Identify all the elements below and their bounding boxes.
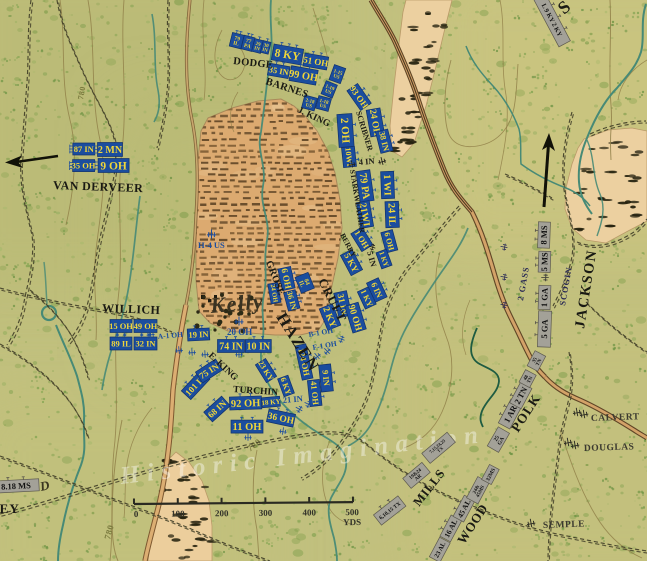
- svg-text:35 OH: 35 OH: [72, 160, 96, 170]
- svg-text:200: 200: [215, 508, 229, 518]
- svg-text:87 IN: 87 IN: [74, 144, 95, 154]
- svg-text:89 IL: 89 IL: [111, 338, 131, 348]
- svg-text:49 OH: 49 OH: [134, 321, 158, 331]
- svg-text:LEY: LEY: [0, 501, 20, 516]
- svg-text:92 OH: 92 OH: [231, 398, 261, 410]
- svg-text:24 IL: 24 IL: [385, 203, 397, 227]
- svg-text:9 IN: 9 IN: [320, 370, 332, 388]
- svg-text:4 IN: 4 IN: [358, 156, 375, 167]
- svg-text:18 KY: 18 KY: [261, 398, 281, 408]
- svg-text:SEMPLE: SEMPLE: [543, 520, 585, 531]
- svg-text:8.18 MS: 8.18 MS: [1, 480, 32, 492]
- svg-text:WILLICH: WILLICH: [102, 301, 161, 317]
- svg-text:H-4 US: H-4 US: [198, 240, 225, 250]
- svg-text:100: 100: [171, 509, 185, 519]
- svg-text:CALVERT: CALVERT: [591, 412, 640, 424]
- svg-text:15 OH: 15 OH: [109, 321, 133, 331]
- svg-text:8 MS: 8 MS: [539, 225, 550, 245]
- svg-text:10 IN: 10 IN: [246, 341, 270, 352]
- svg-text:19 IN: 19 IN: [188, 329, 209, 340]
- svg-text:5 MS: 5 MS: [539, 252, 550, 272]
- svg-text:300: 300: [259, 508, 273, 518]
- svg-text:500: 500: [345, 507, 359, 517]
- svg-text:5 GA: 5 GA: [539, 318, 550, 338]
- svg-text:2 OH: 2 OH: [338, 117, 352, 144]
- svg-text:1 GA: 1 GA: [539, 287, 550, 307]
- svg-text:32 IN: 32 IN: [135, 338, 156, 348]
- svg-text:9 OH: 9 OH: [100, 160, 127, 172]
- svg-text:0: 0: [134, 509, 139, 519]
- svg-text:1 WI: 1 WI: [381, 174, 393, 196]
- svg-text:400: 400: [302, 507, 316, 517]
- svg-text:Kelly: Kelly: [208, 288, 265, 318]
- svg-text:21 IN: 21 IN: [282, 393, 304, 405]
- svg-text:20 OH: 20 OH: [227, 327, 252, 337]
- svg-text:74 IN: 74 IN: [219, 341, 243, 352]
- svg-text:2 MN: 2 MN: [98, 145, 123, 156]
- svg-text:DOUGLAS: DOUGLAS: [584, 442, 635, 454]
- svg-text:YDS: YDS: [343, 517, 361, 527]
- svg-text:11 OH: 11 OH: [233, 422, 262, 433]
